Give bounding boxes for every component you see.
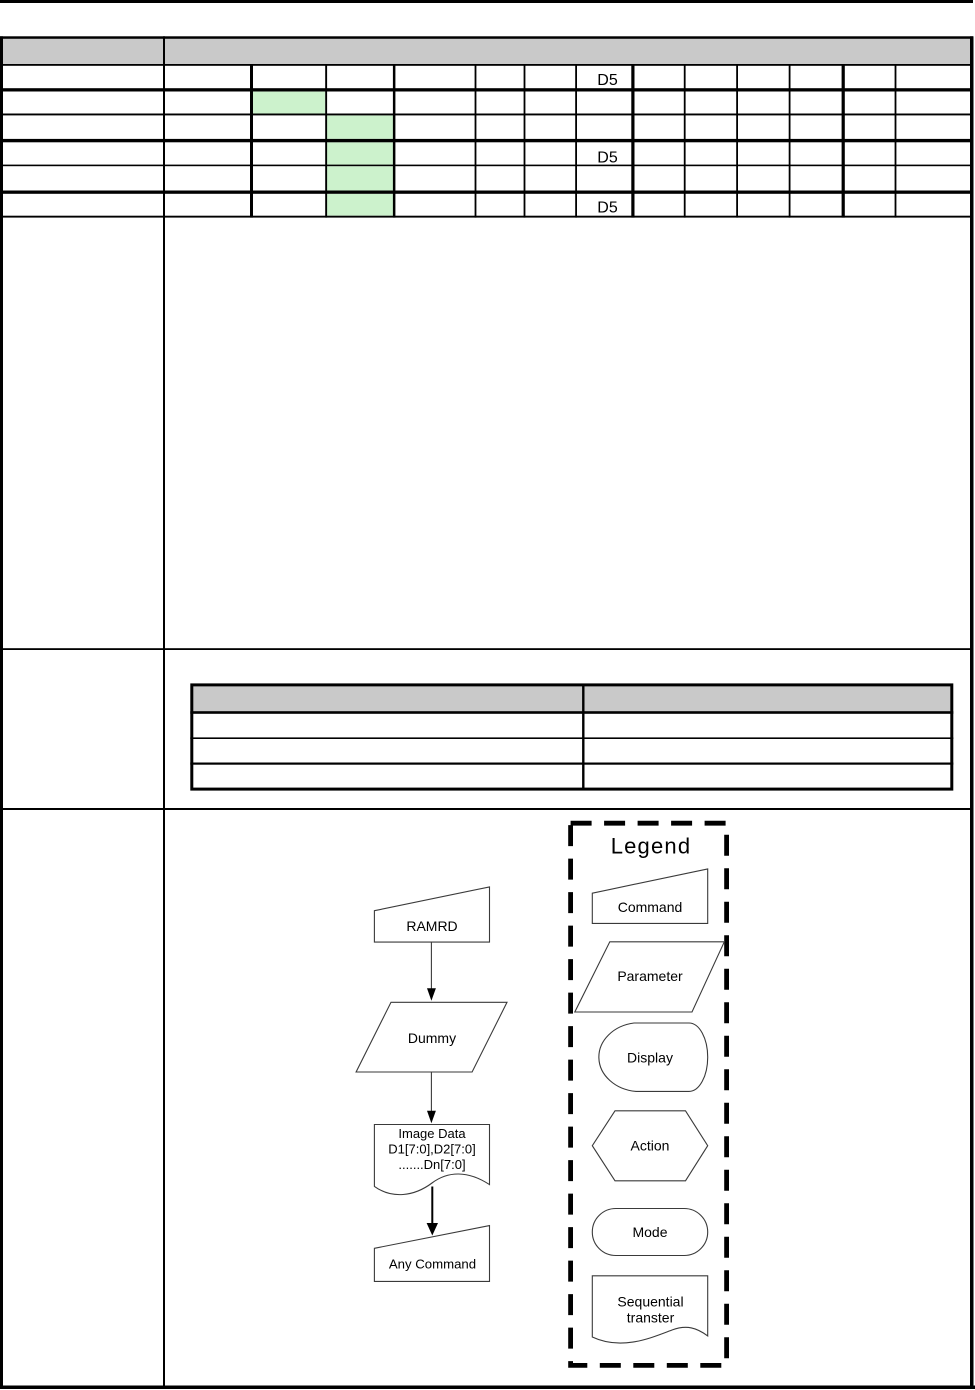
- svg-text:.......Dn[7:0]: .......Dn[7:0]: [398, 1157, 465, 1172]
- svg-text:Mode: Mode: [632, 1224, 667, 1240]
- svg-text:Parameter: Parameter: [617, 968, 683, 984]
- svg-text:Image Data: Image Data: [398, 1126, 466, 1141]
- svg-text:D5: D5: [597, 200, 618, 217]
- svg-text:Sequential: Sequential: [617, 1294, 683, 1310]
- svg-text:Dummy: Dummy: [408, 1030, 456, 1046]
- svg-text:transter: transter: [627, 1310, 675, 1326]
- svg-text:Display: Display: [627, 1049, 673, 1065]
- svg-text:D5: D5: [597, 150, 618, 167]
- svg-text:Any Command: Any Command: [389, 1257, 476, 1272]
- svg-text:D1[7:0],D2[7:0]: D1[7:0],D2[7:0]: [388, 1142, 475, 1157]
- svg-text:RAMRD: RAMRD: [406, 918, 457, 934]
- svg-text:Action: Action: [631, 1138, 670, 1154]
- svg-text:Legend: Legend: [611, 834, 692, 859]
- svg-text:D5: D5: [597, 72, 618, 89]
- svg-text:Command: Command: [618, 899, 683, 915]
